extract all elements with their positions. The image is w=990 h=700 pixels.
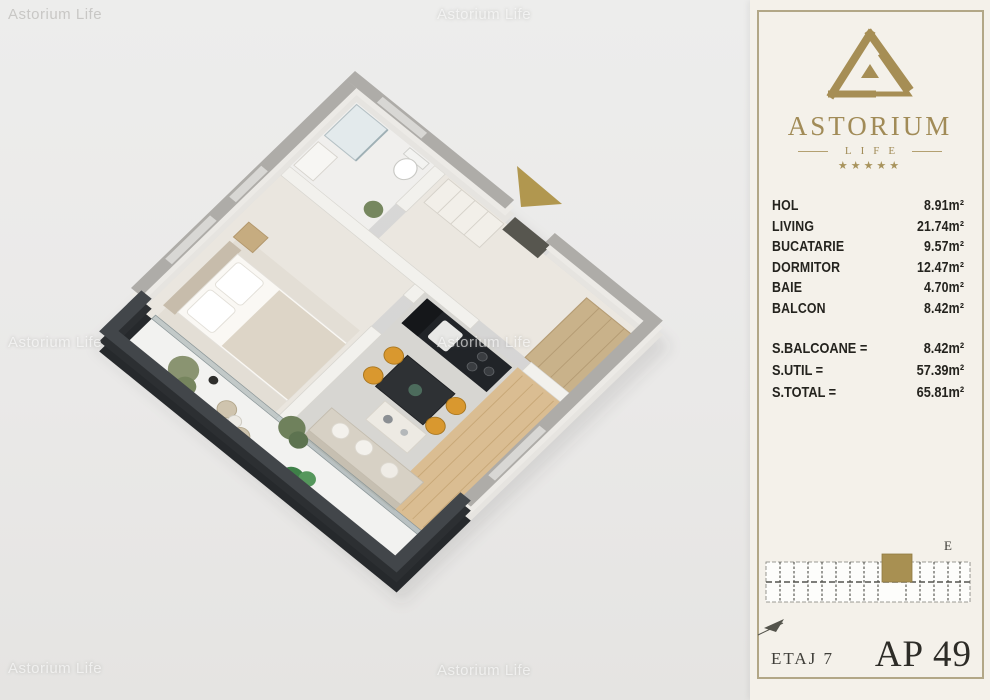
room-value: 8.91m² [924,196,964,217]
room-row: BALCON 8.42m² [772,299,964,320]
total-value: 8.42m² [924,338,964,360]
total-label: S.TOTAL = [772,382,836,404]
floor-label: ETAJ 7 [771,649,834,673]
total-value: 57.39m² [917,360,964,382]
rule-left [798,151,828,152]
room-row: LIVING 21.74m² [772,217,964,238]
info-panel: ASTORIUM LIFE ★★★★★ HOL 8.91m² LIVING 21… [750,0,990,700]
room-label: HOL [772,196,799,217]
apartment-plan-sheet: Astorium Life Astorium Life Astorium Lif… [0,0,990,700]
room-label: BALCON [772,299,826,320]
highlighted-unit [882,554,912,582]
astorium-triangle-logo-icon [818,28,922,102]
mini-plan-section-label: E [944,538,952,554]
total-row: S.UTIL = 57.39m² [772,360,964,382]
room-label: LIVING [772,217,814,238]
total-label: S.BALCOANE = [772,338,867,360]
total-label: S.UTIL = [772,360,823,382]
room-value: 4.70m² [924,278,964,299]
room-value: 8.42m² [924,299,964,320]
apartment-number: AP 49 [875,636,972,673]
room-value: 12.47m² [917,258,964,279]
room-row: BAIE 4.70m² [772,278,964,299]
room-row: DORMITOR 12.47m² [772,258,964,279]
building-site-plan: E [756,536,984,640]
floor-plan-render [0,0,750,700]
room-label: DORMITOR [772,258,840,279]
brand-name: ASTORIUM [750,111,990,142]
floor-plan-svg [0,0,750,700]
room-value: 9.57m² [924,237,964,258]
brand-stars: ★★★★★ [750,159,990,172]
total-value: 65.81m² [917,382,964,404]
room-row: BUCATARIE 9.57m² [772,237,964,258]
room-row: HOL 8.91m² [772,196,964,217]
total-row: S.BALCOANE = 8.42m² [772,338,964,360]
totals-table: S.BALCOANE = 8.42m² S.UTIL = 57.39m² S.T… [772,338,964,404]
plan-iso-group [107,95,661,585]
room-label: BUCATARIE [772,237,844,258]
brand-subtitle: LIFE [750,145,990,157]
panel-footer: ETAJ 7 AP 49 [757,631,984,679]
total-row: S.TOTAL = 65.81m² [772,382,964,404]
brand-logo-block: ASTORIUM LIFE ★★★★★ [750,28,990,172]
room-label: BAIE [772,278,802,299]
area-table: HOL 8.91m² LIVING 21.74m² BUCATARIE 9.57… [772,196,964,404]
rule-right [912,151,942,152]
entrance-arrow-icon [517,166,562,207]
room-value: 21.74m² [917,217,964,238]
